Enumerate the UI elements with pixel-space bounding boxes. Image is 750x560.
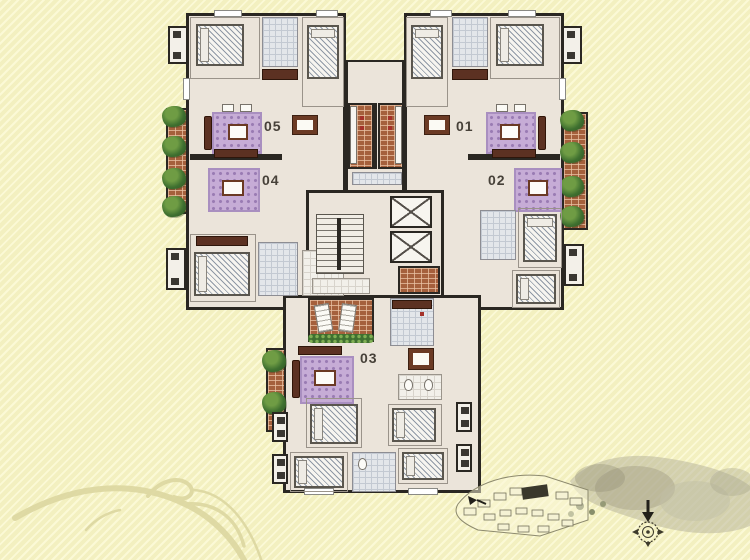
wardrobe bbox=[196, 236, 248, 246]
corridor bbox=[312, 278, 370, 294]
elevator-icon bbox=[390, 231, 432, 263]
coffee-table bbox=[228, 124, 248, 140]
sofa bbox=[538, 116, 546, 150]
balcony-top-right bbox=[562, 26, 582, 64]
window bbox=[508, 10, 536, 17]
site-plan bbox=[440, 446, 750, 558]
plant-icon bbox=[560, 176, 584, 197]
bed bbox=[402, 452, 444, 480]
kitchen-counter bbox=[392, 300, 432, 309]
stair-rail bbox=[337, 218, 341, 270]
window bbox=[559, 78, 566, 100]
bathroom bbox=[262, 17, 298, 67]
plant-icon bbox=[162, 136, 186, 157]
unit-label-05: 05 bbox=[264, 118, 282, 134]
plant-icon bbox=[560, 142, 584, 163]
wardrobe bbox=[262, 69, 298, 80]
bathroom bbox=[480, 210, 516, 260]
plant-icon bbox=[162, 168, 186, 189]
unit-label-01: 01 bbox=[456, 118, 474, 134]
window bbox=[408, 488, 438, 495]
sofa bbox=[292, 360, 300, 398]
bathroom bbox=[452, 17, 488, 67]
armchair bbox=[496, 104, 508, 112]
balcony-small bbox=[272, 454, 288, 484]
sink-icon bbox=[424, 379, 433, 391]
stove-icon bbox=[420, 312, 424, 316]
stove-icon bbox=[360, 126, 364, 130]
toilet-icon bbox=[404, 379, 413, 391]
tv-cabinet bbox=[214, 149, 258, 158]
balcony-small bbox=[456, 402, 472, 432]
window bbox=[214, 10, 242, 17]
utility-sink bbox=[352, 172, 402, 185]
coffee-table bbox=[314, 370, 336, 386]
coffee-table bbox=[222, 180, 244, 196]
unit-label-02: 02 bbox=[488, 172, 506, 188]
bed bbox=[196, 24, 244, 66]
armchair bbox=[240, 104, 252, 112]
balcony-small bbox=[272, 412, 288, 442]
plant-icon bbox=[560, 110, 584, 131]
balcony-bedroom-right bbox=[564, 244, 584, 286]
bathroom bbox=[258, 242, 298, 296]
stove-icon bbox=[360, 116, 364, 120]
entry-foyer bbox=[398, 266, 440, 294]
plant-icon bbox=[560, 206, 584, 227]
stove-icon bbox=[388, 126, 392, 130]
partition-wall bbox=[374, 103, 377, 169]
wardrobe bbox=[452, 69, 488, 80]
elevator-icon bbox=[390, 196, 432, 228]
kitchen-counter bbox=[395, 106, 402, 164]
bed bbox=[307, 25, 339, 79]
dining-table bbox=[292, 115, 318, 135]
dining-table bbox=[408, 348, 434, 370]
window bbox=[316, 10, 338, 17]
tv-cabinet bbox=[492, 149, 536, 158]
window bbox=[430, 10, 452, 17]
coffee-table bbox=[528, 180, 548, 196]
plant-icon bbox=[262, 350, 286, 372]
bed bbox=[523, 214, 557, 262]
balcony-top-left bbox=[168, 26, 188, 64]
coffee-table bbox=[500, 124, 520, 140]
armchair bbox=[514, 104, 526, 112]
plant-icon bbox=[262, 392, 286, 414]
bed bbox=[294, 456, 344, 488]
bed bbox=[516, 274, 556, 304]
plant-icon bbox=[162, 106, 186, 127]
sofa bbox=[204, 116, 212, 150]
bed bbox=[392, 408, 436, 442]
balcony-bedroom-left bbox=[166, 248, 186, 290]
floorplan-canvas: 05 04 01 02 bbox=[0, 0, 750, 560]
bed bbox=[194, 252, 250, 296]
plant-icon bbox=[162, 196, 186, 217]
window bbox=[183, 78, 190, 100]
stove-icon bbox=[388, 116, 392, 120]
bed bbox=[496, 24, 544, 66]
armchair bbox=[222, 104, 234, 112]
bed bbox=[411, 25, 443, 79]
unit-label-04: 04 bbox=[262, 172, 280, 188]
dining-table bbox=[424, 115, 450, 135]
kitchen-counter bbox=[350, 106, 357, 164]
toilet-icon bbox=[358, 458, 367, 470]
unit-label-03: 03 bbox=[360, 350, 378, 366]
planter-strip bbox=[308, 334, 374, 343]
tv-cabinet bbox=[298, 346, 342, 355]
bed bbox=[310, 404, 358, 444]
bathroom bbox=[352, 452, 396, 492]
